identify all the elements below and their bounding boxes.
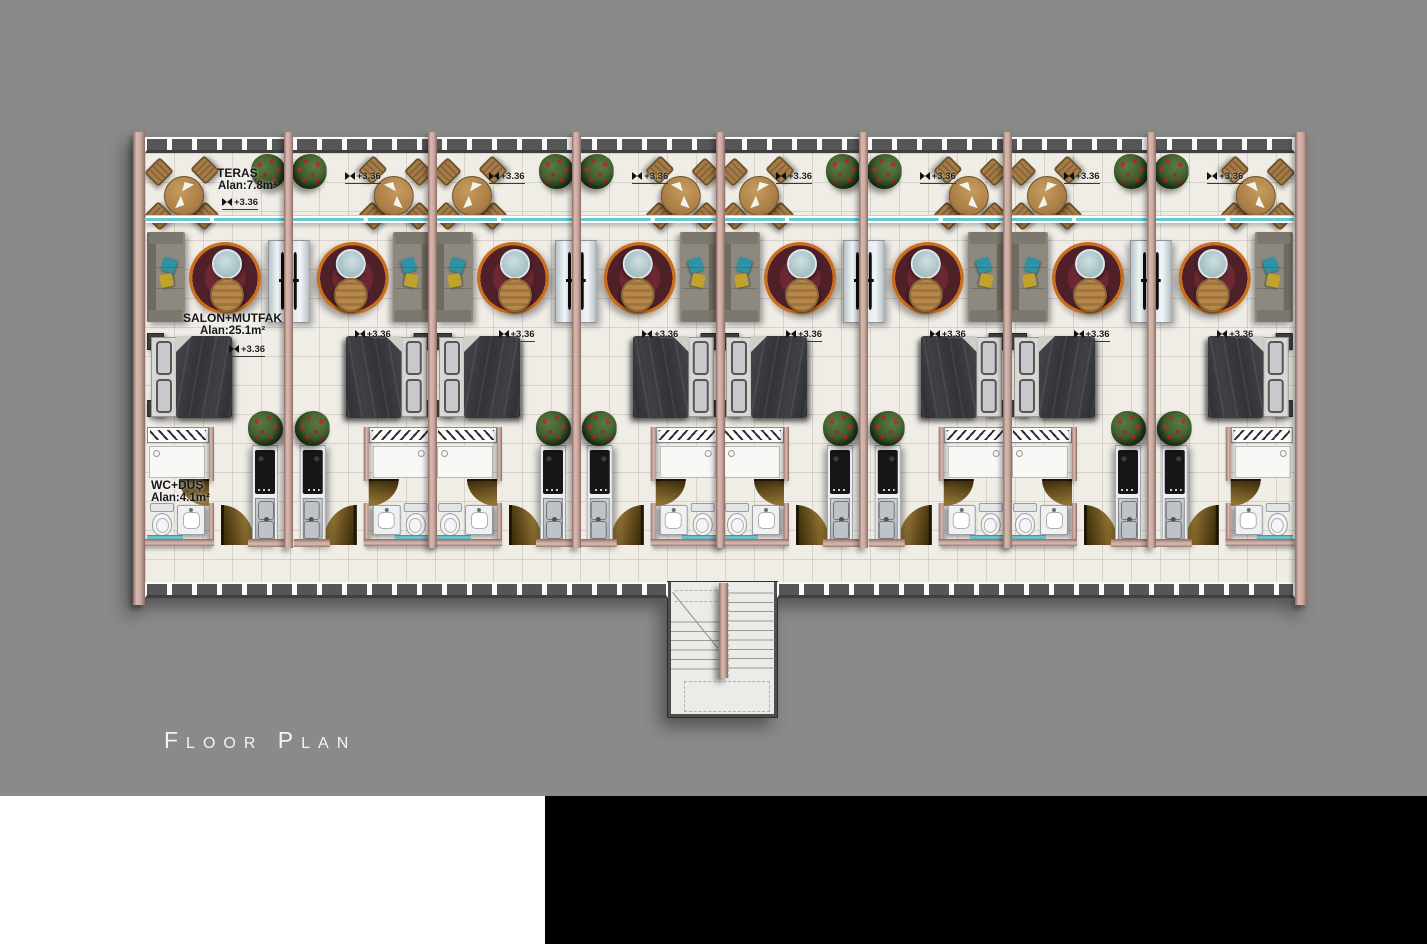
outer-wall-right [1295,132,1307,605]
partition-wall [1147,132,1156,548]
stair-landing [684,681,770,712]
floor-plan: TERAS Alan:7.8m² +3.36 SALON+MUTFAK Alan… [133,132,1307,608]
floor-plan-canvas: TERAS Alan:7.8m² +3.36 SALON+MUTFAK Alan… [0,0,1427,944]
partition-wall [284,132,293,548]
stair-flight-left [671,613,719,677]
footer-white-panel [0,796,545,944]
page-title: Floor Plan [164,727,356,754]
footer-black-panel [545,796,1427,944]
outer-wall-left [133,132,145,605]
partition-wall [428,132,437,548]
partition-walls [133,132,1307,608]
partition-wall [716,132,725,548]
partition-wall [572,132,581,548]
partition-wall [859,132,868,548]
partition-wall [1003,132,1012,548]
